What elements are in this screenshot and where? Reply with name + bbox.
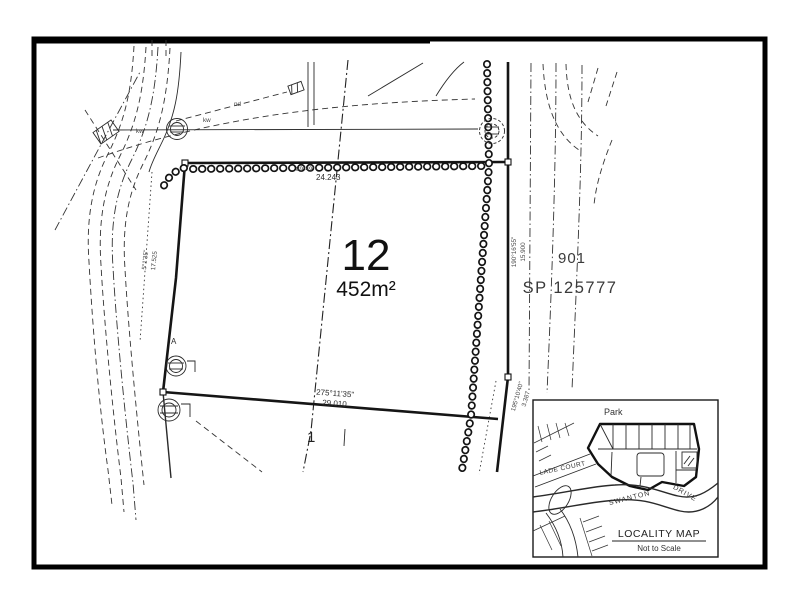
annotation-nd: nd — [234, 101, 242, 108]
pit-symbol — [93, 120, 119, 144]
svg-text:29.010: 29.010 — [322, 398, 348, 409]
tree-symbol — [158, 399, 190, 421]
north-distance: 24.243 — [316, 173, 341, 182]
annotation-marker-a: A — [171, 337, 177, 346]
annotation-kw: kw — [203, 117, 211, 124]
east-dimension: 190°16'55" 15.900 — [510, 237, 527, 267]
survey-plan-drawing: 12 452m² 1 901 SP 125777 89°49' 24.243 5… — [0, 0, 800, 600]
locality-map-inset: Park — [533, 400, 718, 557]
annotation-kw: kw — [136, 128, 144, 135]
tree-symbol — [480, 119, 505, 144]
adjoining-lot-lines — [529, 63, 617, 393]
adjacent-lot-label: 1 — [307, 429, 315, 446]
svg-text:190°16'55": 190°16'55" — [510, 237, 518, 267]
lot-boundary — [160, 62, 511, 478]
north-bearing: 89°49' — [296, 165, 314, 173]
tree-symbol — [167, 119, 188, 140]
lot-number: 12 — [342, 231, 391, 280]
tree-symbol — [166, 356, 195, 376]
svg-text:17.525: 17.525 — [150, 250, 159, 270]
service-alignment-lines — [98, 62, 478, 158]
svg-text:3.387: 3.387 — [521, 390, 532, 408]
svg-text:5°1'35": 5°1'35" — [140, 249, 150, 270]
road-kerb-lines — [55, 46, 181, 520]
svg-text:15.900: 15.900 — [520, 242, 527, 262]
park-label: Park — [604, 407, 623, 417]
locality-map-title: LOCALITY MAP — [618, 528, 700, 540]
adjacent-plan-label: SP 125777 — [523, 279, 618, 297]
lot-area: 452m² — [336, 278, 396, 301]
pit-symbol — [288, 81, 304, 94]
south-east-dimension: 195°10'40" 3.387 — [509, 381, 534, 415]
locality-map-scale-note: Not to Scale — [637, 544, 681, 553]
survey-plan-page: 12 452m² 1 901 SP 125777 89°49' 24.243 5… — [0, 0, 800, 600]
west-dimension: 5°1'35" 17.525 — [140, 249, 159, 271]
adjacent-lot-901-label: 901 — [558, 250, 586, 267]
